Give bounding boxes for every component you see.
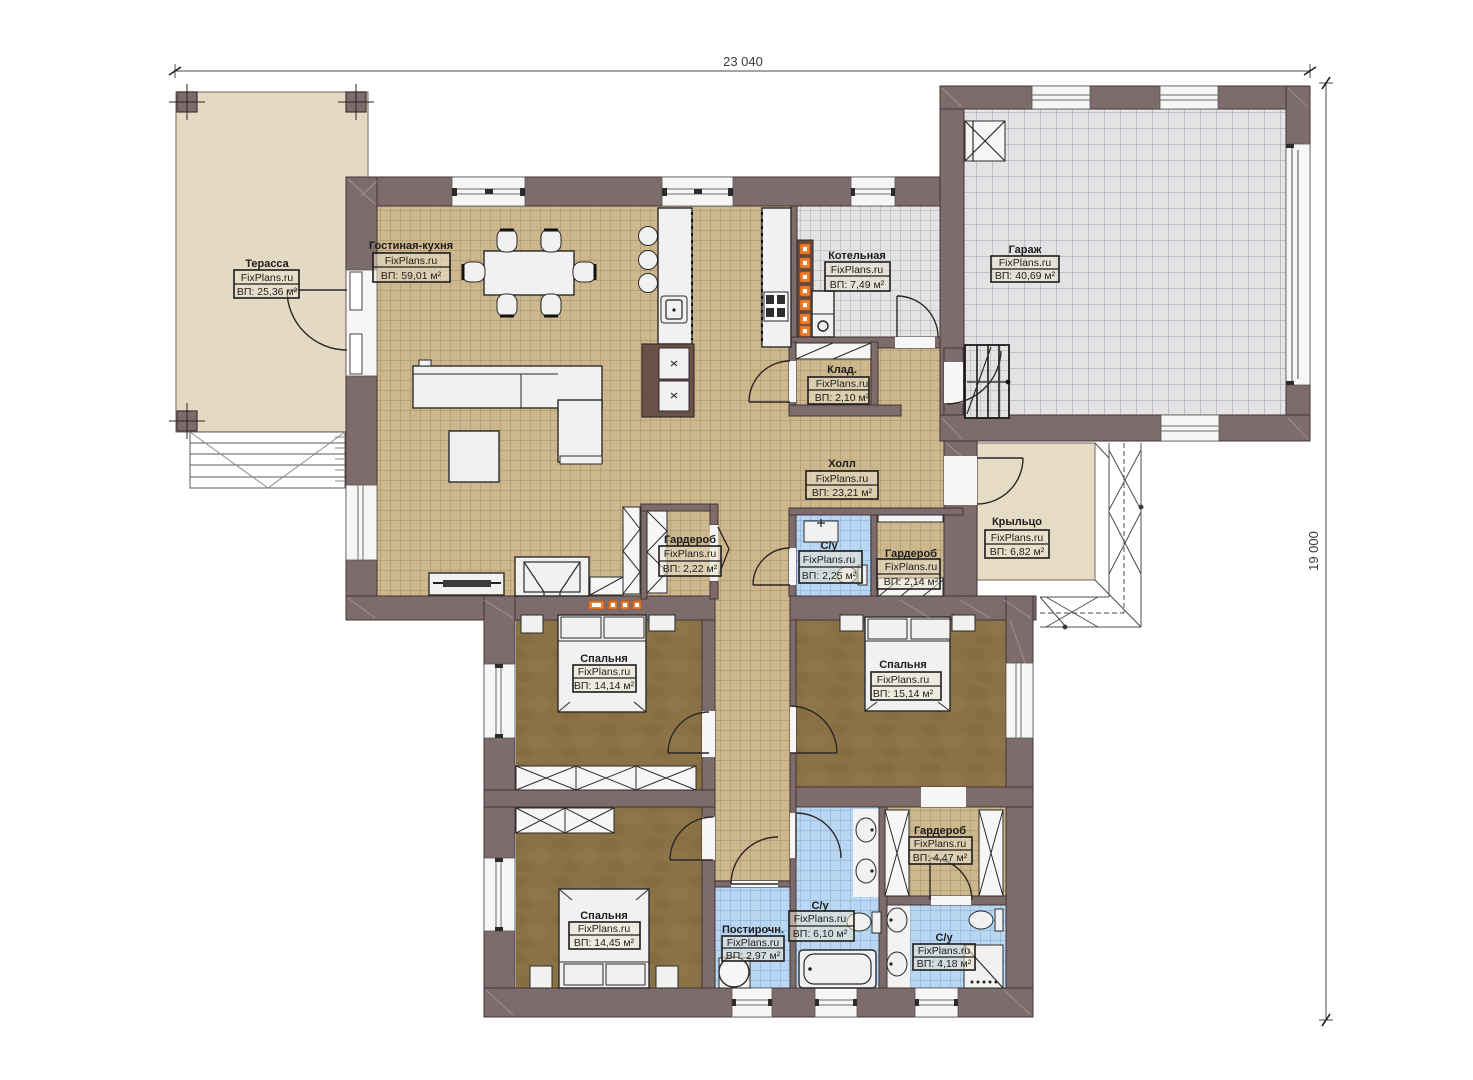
svg-text:FixPlans.ru: FixPlans.ru [816, 473, 869, 485]
svg-text:ВП: 2,10 м²: ВП: 2,10 м² [815, 392, 870, 404]
svg-text:FixPlans.ru: FixPlans.ru [727, 937, 780, 949]
svg-text:19 000: 19 000 [1306, 531, 1321, 571]
svg-text:Спальня: Спальня [879, 659, 927, 671]
svg-text:FixPlans.ru: FixPlans.ru [241, 272, 294, 284]
svg-text:Гардероб: Гардероб [664, 534, 716, 546]
svg-text:FixPlans.ru: FixPlans.ru [831, 264, 884, 276]
svg-text:FixPlans.ru: FixPlans.ru [803, 554, 856, 566]
svg-text:ВП: 14,14 м²: ВП: 14,14 м² [574, 680, 635, 692]
svg-text:Крыльцо: Крыльцо [992, 516, 1042, 528]
svg-text:ВП: 2,25 м²: ВП: 2,25 м² [802, 570, 857, 582]
svg-text:Гостиная-кухня: Гостиная-кухня [369, 240, 453, 252]
svg-text:ВП: 2,97 м²: ВП: 2,97 м² [726, 950, 781, 962]
svg-text:ВП: 2,22 м²: ВП: 2,22 м² [663, 563, 718, 575]
svg-text:ВП: 2,14 м²: ВП: 2,14 м² [884, 576, 939, 588]
svg-text:Спальня: Спальня [580, 910, 628, 922]
svg-text:FixPlans.ru: FixPlans.ru [794, 913, 847, 925]
svg-text:ВП: 15,14 м²: ВП: 15,14 м² [873, 688, 934, 700]
svg-text:Холл: Холл [828, 458, 856, 470]
svg-text:Котельная: Котельная [828, 250, 886, 262]
svg-text:ВП: 6,82 м²: ВП: 6,82 м² [990, 546, 1045, 558]
svg-text:Гараж: Гараж [1009, 244, 1042, 256]
svg-text:FixPlans.ru: FixPlans.ru [578, 666, 631, 678]
svg-text:ВП: 25,36 м²: ВП: 25,36 м² [237, 286, 298, 298]
svg-text:FixPlans.ru: FixPlans.ru [999, 257, 1052, 269]
svg-text:ВП: 23,21 м²: ВП: 23,21 м² [812, 487, 873, 499]
svg-text:ВП: 14,45 м²: ВП: 14,45 м² [574, 937, 635, 949]
svg-text:FixPlans.ru: FixPlans.ru [664, 548, 717, 560]
svg-text:FixPlans.ru: FixPlans.ru [385, 255, 438, 267]
svg-text:Гардероб: Гардероб [914, 825, 966, 837]
svg-text:ВП: 6,10 м²: ВП: 6,10 м² [793, 928, 848, 940]
svg-text:FixPlans.ru: FixPlans.ru [885, 561, 938, 573]
svg-text:ВП: 7,49 м²: ВП: 7,49 м² [830, 279, 885, 291]
svg-text:ВП: 4,47 м²: ВП: 4,47 м² [913, 852, 968, 864]
svg-text:ВП: 40,69 м²: ВП: 40,69 м² [995, 270, 1056, 282]
svg-text:ВП: 4,18 м²: ВП: 4,18 м² [917, 958, 972, 970]
svg-text:FixPlans.ru: FixPlans.ru [877, 674, 930, 686]
svg-text:Клад.: Клад. [827, 364, 857, 376]
svg-text:Терасса: Терасса [245, 258, 289, 270]
svg-text:С/у: С/у [935, 932, 953, 944]
svg-text:FixPlans.ru: FixPlans.ru [914, 838, 967, 850]
svg-text:Постирочн.: Постирочн. [722, 924, 784, 936]
svg-text:FixPlans.ru: FixPlans.ru [918, 945, 971, 957]
svg-text:Спальня: Спальня [580, 653, 628, 665]
svg-text:FixPlans.ru: FixPlans.ru [578, 923, 631, 935]
svg-text:FixPlans.ru: FixPlans.ru [816, 378, 869, 390]
svg-text:23 040: 23 040 [723, 54, 763, 69]
svg-text:FixPlans.ru: FixPlans.ru [991, 532, 1044, 544]
svg-text:ВП: 59,01 м²: ВП: 59,01 м² [381, 270, 442, 282]
